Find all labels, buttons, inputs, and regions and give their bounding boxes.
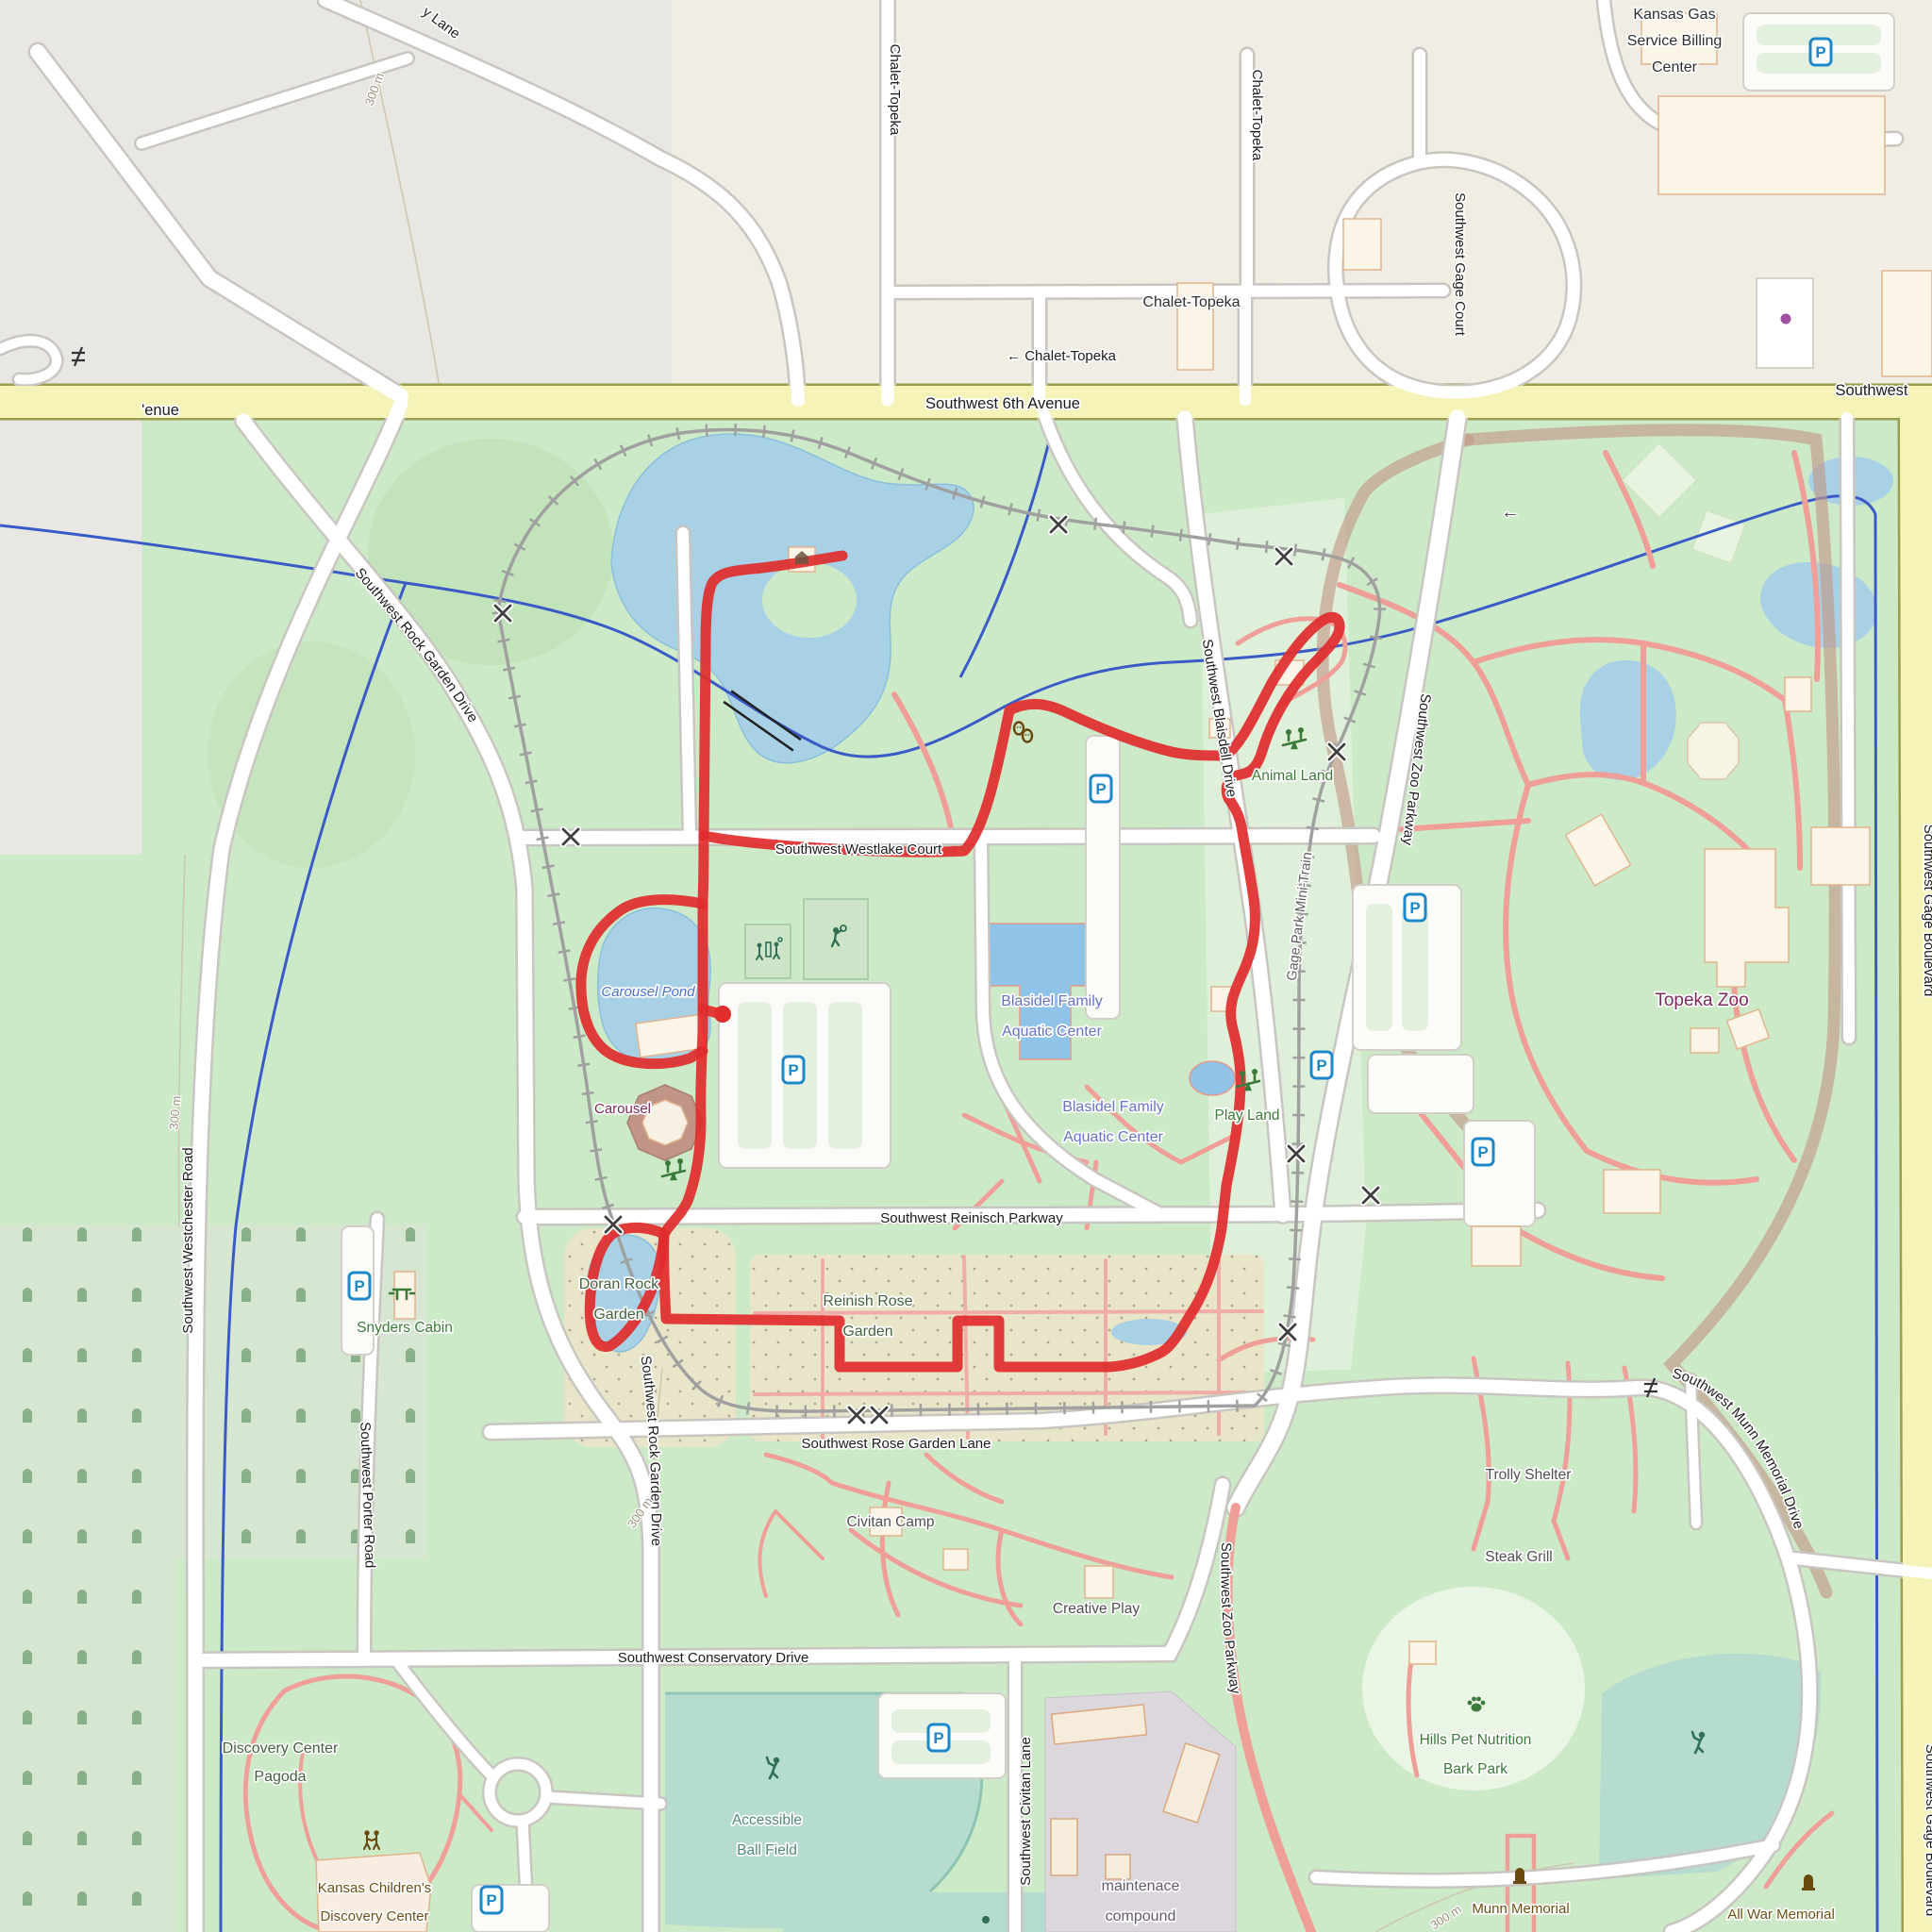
map-label-kansas-gas: Kansas Gas [1633, 7, 1715, 23]
sw-gage-boulevard [1917, 418, 1921, 1932]
munn-stub [1690, 1379, 1696, 1524]
urban-area-topleft [0, 0, 672, 383]
map-label-southwest-gage-boulevard: Southwest Gage Boulevard [1921, 824, 1932, 997]
zoo-building-s1 [1604, 1170, 1660, 1213]
svg-text:P: P [1316, 1057, 1326, 1074]
chalet-building-2 [1343, 219, 1381, 270]
oneway-icon: ← [1501, 502, 1520, 523]
map-label-snyders-cabin: Snyders Cabin [357, 1320, 453, 1336]
map-label-service-billing: Service Billing [1627, 33, 1722, 49]
svg-text:P: P [1095, 780, 1106, 798]
map-label-southwest-conservatory-drive: Southwest Conservatory Drive [618, 1650, 809, 1666]
map-label-300-m: 300 m [166, 1095, 183, 1130]
blaisdell-link-casing [1040, 400, 1191, 621]
map-label-compound: compound [1106, 1908, 1176, 1924]
map-label-pagoda: Pagoda [254, 1769, 306, 1785]
park-path [894, 694, 955, 851]
zoo-main-building [1705, 849, 1789, 987]
gps-track-endpoint [714, 1006, 731, 1023]
park-path [759, 1511, 775, 1596]
park-path [755, 1392, 1262, 1394]
zoo-building-small-1 [1690, 1028, 1719, 1053]
park-path [851, 1530, 1021, 1606]
map-label-doran-rock: Doran Rock [579, 1276, 659, 1292]
svg-text:P: P [1815, 43, 1825, 61]
map-label-center: Center [1652, 59, 1698, 75]
map-label-maintenace: maintenace [1102, 1878, 1180, 1894]
map-label-discovery-center: Discovery Center [223, 1740, 339, 1757]
building-ne [1882, 271, 1932, 376]
sports-court-volleyball [745, 924, 791, 978]
dotgreen-icon [982, 1916, 990, 1924]
lake-access-road [683, 533, 690, 836]
map-label-discovery-center: Discovery Center [320, 1908, 428, 1924]
zoo-building-s2 [1472, 1226, 1521, 1266]
map-label-ball-field: Ball Field [737, 1842, 797, 1858]
parking-icon: P [1473, 1139, 1493, 1165]
maintenance-building-2 [1051, 1819, 1077, 1875]
park-path [1554, 1521, 1568, 1558]
map-label-topeka-zoo: Topeka Zoo [1655, 991, 1748, 1010]
map-label-southwest-civitan-lane: Southwest Civitan Lane [1018, 1737, 1034, 1886]
playground-icon [662, 1158, 685, 1179]
zoo-pond-west [1580, 660, 1676, 780]
blaisdell-link [1040, 400, 1191, 621]
map-label-civitan-camp: Civitan Camp [846, 1514, 934, 1530]
parking-icon: P [1405, 894, 1425, 921]
lot-central-slot [738, 1002, 772, 1149]
parking-icon: P [928, 1724, 949, 1751]
map-label-chalet-topeka: Chalet-Topeka [887, 44, 903, 136]
maintenance-building-3 [1106, 1855, 1130, 1879]
map-label-trolly-shelter: Trolly Shelter [1486, 1467, 1572, 1483]
urban-strip-left [0, 383, 142, 855]
lake-island [762, 562, 857, 638]
park-path [1528, 774, 1747, 849]
svg-text:P: P [354, 1277, 364, 1295]
map-label-blasidel-family: Blasidel Family [1001, 993, 1103, 1009]
parking-icon: P [1311, 1052, 1332, 1078]
discovery-access [396, 1660, 491, 1775]
parking-icon: P [783, 1057, 804, 1083]
chalet-grid-h [888, 291, 1443, 292]
map-label-aquatic-center: Aquatic Center [1002, 1024, 1103, 1040]
svg-text:P: P [788, 1061, 798, 1079]
civitan-hut-2 [943, 1549, 968, 1570]
map-label-garden: Garden [593, 1307, 643, 1323]
zoo-plaza-octagon [1688, 723, 1739, 779]
aquatic-pool-small [1190, 1061, 1235, 1095]
parking-icon: P [349, 1273, 370, 1299]
zoo-ball-field [1599, 1654, 1821, 1879]
svg-text:P: P [1409, 899, 1420, 917]
lot-zoo-south [1464, 1121, 1535, 1226]
map-label-creative-play: Creative Play [1053, 1601, 1140, 1617]
map-label-munn-memorial: Munn Memorial [1472, 1901, 1569, 1917]
map-label-southwest-westlake-court: Southwest Westlake Court [775, 841, 942, 858]
svg-text:←: ← [1501, 502, 1520, 523]
map-label-southwest: Southwest [1835, 382, 1907, 399]
lot-zoo-mid [1368, 1055, 1474, 1113]
discovery-roundabout [490, 1764, 546, 1821]
map-label-aquatic-center: Aquatic Center [1063, 1129, 1164, 1145]
park-path [775, 1511, 823, 1558]
poidot-icon [1781, 314, 1791, 325]
map-label-bark-park: Bark Park [1443, 1761, 1507, 1777]
creative-play-building [1085, 1566, 1113, 1598]
bark-park-area [1362, 1587, 1585, 1790]
discovery-east [546, 1797, 660, 1804]
map-label-reinish-rose: Reinish Rose [823, 1293, 912, 1309]
map-viewport[interactable]: Gage Park and Topeka Zoo map with record… [0, 0, 1932, 1932]
park-path [926, 1455, 1002, 1502]
map-label-carousel: Carousel [594, 1101, 651, 1117]
masks-icon [1014, 723, 1032, 742]
park-path [1087, 1087, 1181, 1162]
sw-westchester-road [195, 404, 401, 1932]
map-label-kansas-children-s: Kansas Children's [318, 1880, 431, 1896]
map-label-enue: 'enue [142, 402, 179, 419]
map-label-chalet-topeka: Chalet-Topeka [1249, 70, 1265, 161]
map-label-garden: Garden [842, 1324, 892, 1340]
zoo-building-small-2 [1727, 1009, 1770, 1049]
memorial-icon [1802, 1874, 1815, 1890]
children-icon [364, 1830, 379, 1849]
map-label-play-land: Play Land [1215, 1108, 1280, 1124]
map-label-southwest-gage-court: Southwest Gage Court [1452, 192, 1468, 337]
map-svg[interactable]: Gage Park and Topeka Zoo map with record… [0, 0, 1932, 1932]
kansas-gas-main [1658, 96, 1885, 194]
parking-icon: P [1810, 39, 1831, 65]
map-label-chalet-topeka: Chalet-Topeka [1142, 294, 1240, 310]
svg-text:P: P [1477, 1143, 1488, 1161]
map-label-all-war-memorial: All War Memorial [1727, 1907, 1835, 1923]
sw-zoo-parkway-south [1228, 1507, 1311, 1932]
svg-text:P: P [933, 1729, 943, 1747]
map-label-300-m: 300 m [1427, 1902, 1463, 1932]
map-label-southwest-rose-garden-lane: Southwest Rose Garden Lane [802, 1436, 991, 1452]
zoo-building-west [1565, 814, 1630, 886]
map-label-hills-pet-nutrition: Hills Pet Nutrition [1420, 1732, 1532, 1748]
map-label-accessible: Accessible [732, 1812, 802, 1828]
stream-north [960, 422, 1054, 677]
park-path [1511, 1226, 1662, 1278]
map-label-blasidel-family: Blasidel Family [1062, 1099, 1164, 1115]
map-label-southwest-zoo-parkway: Southwest Zoo Parkway [1218, 1542, 1244, 1696]
parking-icon: P [481, 1887, 502, 1913]
map-label-southwest-reinisch-parkway: Southwest Reinisch Parkway [880, 1210, 1063, 1226]
map-label-animal-land: Animal Land [1252, 768, 1333, 784]
map-label-carousel-pond: Carousel Pond [601, 984, 695, 1000]
lot-central-slot [828, 1002, 862, 1149]
gate-x-icon [1363, 1188, 1378, 1203]
parking-icon: P [1091, 775, 1111, 802]
map-label-southwest-6th-avenue: Southwest 6th Avenue [925, 395, 1080, 412]
gage-frontage [1847, 418, 1849, 1038]
map-label-southwest-westchester-road: Southwest Westchester Road [180, 1147, 196, 1333]
park-path [1474, 1502, 1488, 1549]
svg-text:P: P [486, 1891, 496, 1909]
lot-zoo-north-slot [1366, 904, 1392, 1031]
zoo-building-east [1811, 827, 1870, 885]
map-label-southwest-gage-boulevard: Southwest Gage Boulevard [1923, 1744, 1932, 1917]
park-path [766, 1455, 832, 1483]
park-path [1785, 700, 1800, 868]
zoo-building-north [1785, 677, 1811, 711]
park-path [998, 1530, 1021, 1624]
lot-zoo-north-slot [1402, 904, 1428, 1031]
map-label-chalet-topeka: ← Chalet-Topeka [1007, 348, 1117, 364]
bark-park-hut [1409, 1641, 1436, 1664]
map-label-steak-grill: Steak Grill [1485, 1549, 1553, 1565]
